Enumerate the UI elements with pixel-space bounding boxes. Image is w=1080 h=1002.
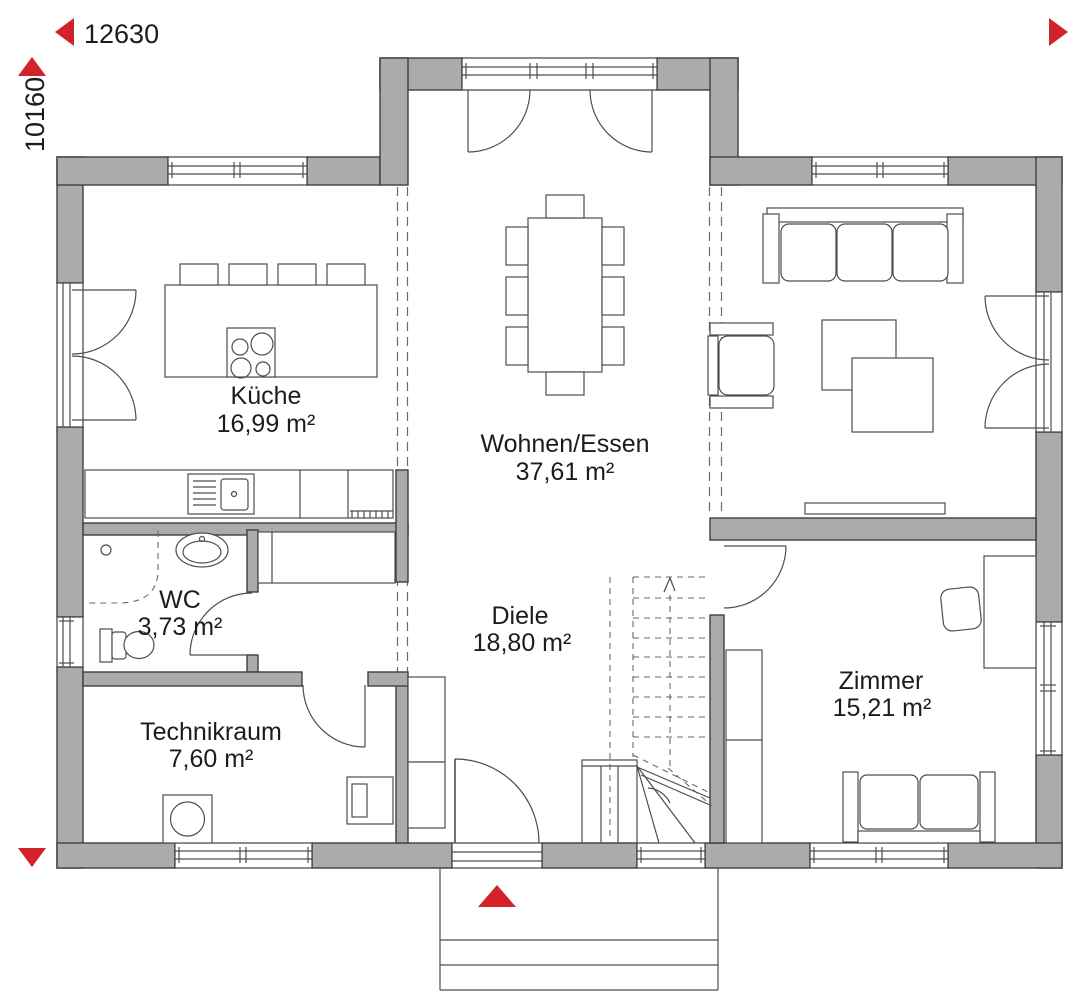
hall-cabinet bbox=[408, 677, 445, 762]
wardrobe bbox=[726, 650, 762, 843]
living-window bbox=[812, 157, 948, 185]
entrance-threshold bbox=[452, 843, 542, 868]
bay-door-frame bbox=[462, 58, 657, 90]
room-area-technikraum: 7,60 m² bbox=[169, 745, 254, 773]
cooktop bbox=[227, 328, 275, 378]
dim-arrow-down-icon bbox=[18, 848, 46, 867]
room-label-diele: Diele bbox=[492, 602, 549, 630]
room-area-wc: 3,73 m² bbox=[138, 613, 223, 641]
hall-closet bbox=[258, 532, 395, 583]
kitchen-window bbox=[168, 157, 307, 185]
desk-chair bbox=[940, 586, 982, 632]
room-area-wohnen-essen: 37,61 m² bbox=[516, 458, 615, 486]
technik-door bbox=[303, 685, 365, 747]
dining-chair bbox=[506, 277, 528, 315]
technik-fixtures bbox=[163, 777, 393, 843]
bar-stool bbox=[180, 264, 218, 285]
bar-stool bbox=[278, 264, 316, 285]
room-label-wohnen-essen: Wohnen/Essen bbox=[480, 430, 649, 458]
room-area-kueche: 16,99 m² bbox=[217, 410, 316, 438]
living-furniture bbox=[708, 208, 963, 514]
technik-window bbox=[175, 843, 312, 868]
room-label-wc: WC bbox=[159, 586, 201, 614]
dining-table bbox=[528, 218, 602, 372]
stair-direction-arrow bbox=[664, 578, 675, 592]
dining-chair bbox=[602, 227, 624, 265]
dining-chair bbox=[546, 372, 584, 395]
dim-arrow-left-icon bbox=[55, 18, 74, 46]
dining-chair bbox=[506, 327, 528, 365]
entrance-porch bbox=[440, 868, 718, 990]
dining-chair bbox=[506, 227, 528, 265]
boiler bbox=[347, 777, 393, 824]
floor-plan-page: 12630 10160 Küche 16,99 m² Wohnen/Essen … bbox=[0, 0, 1080, 1002]
staircase bbox=[582, 577, 712, 843]
room-label-kueche: Küche bbox=[231, 382, 302, 410]
dim-arrow-right-icon bbox=[1049, 18, 1068, 46]
room-area-zimmer: 15,21 m² bbox=[833, 694, 932, 722]
bar-stool bbox=[229, 264, 267, 285]
room-area-diele: 18,80 m² bbox=[473, 629, 572, 657]
bay-double-door bbox=[468, 90, 652, 152]
bar-stool bbox=[327, 264, 365, 285]
dining-chair bbox=[602, 277, 624, 315]
living-french-door-frame bbox=[1036, 292, 1062, 432]
wc-fixtures bbox=[85, 531, 228, 662]
dining-chair bbox=[602, 327, 624, 365]
dining-furniture bbox=[506, 195, 624, 395]
shower-head-icon bbox=[101, 545, 111, 555]
room-label-technikraum: Technikraum bbox=[140, 718, 282, 746]
sideboard bbox=[805, 503, 945, 514]
entrance-door bbox=[455, 759, 539, 843]
zimmer-sofa bbox=[843, 772, 995, 843]
room-label-zimmer: Zimmer bbox=[839, 667, 924, 695]
zimmer-door bbox=[724, 546, 786, 608]
dining-chair bbox=[546, 195, 584, 218]
wc-window bbox=[57, 617, 83, 667]
hall-cabinet bbox=[408, 762, 445, 828]
washbasin bbox=[176, 533, 228, 567]
entrance-arrow-icon bbox=[478, 885, 516, 907]
zimmer-bottom-window bbox=[810, 843, 948, 868]
coffee-table bbox=[852, 358, 933, 432]
dim-height-label: 10160 bbox=[20, 77, 50, 152]
dim-arrow-up-icon bbox=[18, 57, 46, 76]
armchair bbox=[708, 323, 774, 408]
kitchen-counter bbox=[85, 470, 393, 518]
shower bbox=[85, 531, 158, 603]
dim-width-label: 12630 bbox=[84, 19, 159, 49]
zimmer-side-window bbox=[1036, 622, 1062, 755]
kitchen-french-door-frame bbox=[57, 283, 83, 427]
floor-plan: 12630 10160 Küche 16,99 m² Wohnen/Essen … bbox=[0, 0, 1080, 1002]
sofa bbox=[763, 208, 963, 283]
desk bbox=[984, 556, 1036, 668]
washing-machine bbox=[163, 795, 212, 843]
stair-window bbox=[637, 843, 705, 868]
